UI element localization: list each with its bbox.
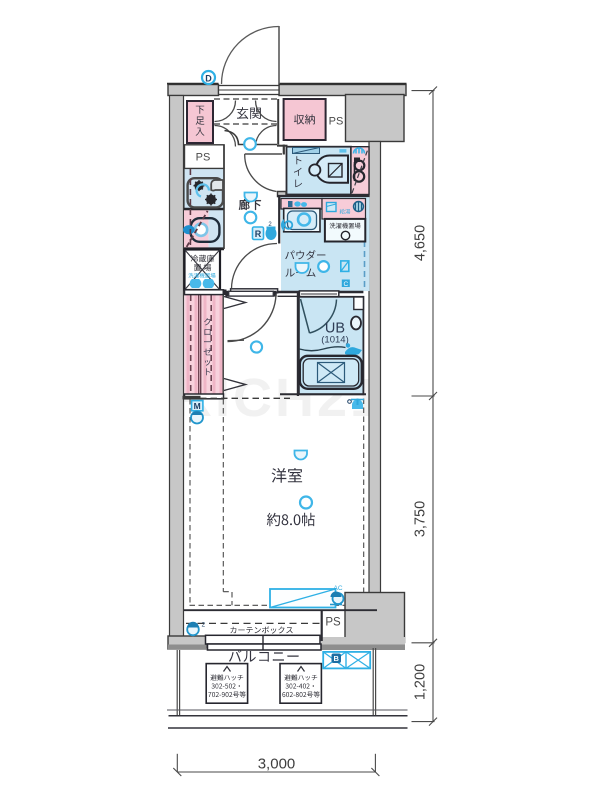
svg-text:M: M (194, 401, 201, 411)
svg-text:4,650: 4,650 (413, 225, 429, 261)
svg-text:AC: AC (333, 585, 342, 592)
svg-text:2: 2 (202, 622, 206, 629)
svg-text:PS: PS (196, 152, 211, 164)
svg-text:1,200: 1,200 (413, 664, 429, 700)
svg-text:C: C (343, 281, 348, 288)
svg-text:3,750: 3,750 (413, 501, 429, 537)
svg-text:D: D (205, 74, 212, 84)
svg-text:3,000: 3,000 (258, 756, 296, 773)
svg-text:B: B (333, 654, 339, 663)
svg-text:PS: PS (325, 617, 341, 629)
svg-text:R: R (255, 229, 262, 239)
svg-text:PS: PS (329, 116, 344, 128)
svg-text:(1014): (1014) (321, 335, 348, 346)
